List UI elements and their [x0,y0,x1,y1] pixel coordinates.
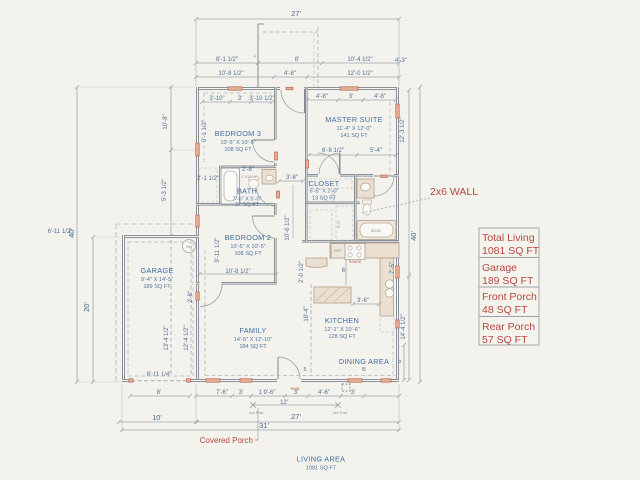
svg-text:3': 3' [351,390,355,396]
svg-text:3': 3' [238,96,242,102]
svg-text:20': 20' [82,302,91,312]
svg-text:9'-4" X 14'-5": 9'-4" X 14'-5" [141,277,173,283]
svg-text:9'-1 1/2": 9'-1 1/2" [202,120,208,142]
svg-text:12'-1" X 10'-6": 12'-1" X 10'-6" [324,327,359,333]
svg-text:1081 SQ FT: 1081 SQ FT [482,245,540,257]
svg-text:8': 8' [295,57,299,63]
svg-text:3': 3' [239,390,243,396]
svg-text:14'-4 1/2": 14'-4 1/2" [401,314,407,339]
svg-text:40': 40' [409,231,418,241]
svg-text:8'-11 1/4": 8'-11 1/4" [147,372,172,378]
svg-text:5'-5": 5'-5" [337,220,341,228]
svg-text:184 SQ FT: 184 SQ FT [239,344,267,350]
svg-text:4'-3": 4'-3" [395,58,407,64]
svg-text:Total Living: Total Living [482,232,535,244]
svg-text:KITCHEN: KITCHEN [325,316,359,325]
svg-text:3'-6": 3'-6" [357,298,369,304]
svg-text:WH: WH [186,245,193,249]
svg-text:13 SQ FT: 13 SQ FT [312,196,337,202]
svg-text:10'-8 1/2": 10'-8 1/2" [218,71,243,77]
svg-text:RANGE: RANGE [349,260,362,264]
svg-text:MASTER SUITE: MASTER SUITE [325,115,383,124]
svg-text:10': 10' [152,413,162,422]
svg-text:4'-6": 4'-6" [318,390,330,396]
svg-text:REF: REF [334,249,342,253]
svg-text:1081 SQ FT: 1081 SQ FT [306,466,337,472]
svg-text:BEDROOM 3: BEDROOM 3 [215,129,262,138]
svg-text:31': 31' [259,421,269,430]
svg-text:48 SQ FT: 48 SQ FT [482,304,528,316]
svg-text:6'-8 1/2": 6'-8 1/2" [322,148,344,154]
svg-text:10'-8": 10'-8" [163,114,169,129]
svg-text:10'-5" X 10'-5": 10'-5" X 10'-5" [220,140,255,146]
svg-text:RWB: RWB [291,387,300,391]
svg-text:BEDROOM 2: BEDROOM 2 [225,233,272,242]
svg-text:189 SQ FT: 189 SQ FT [143,284,171,290]
svg-text:8': 8' [157,390,161,396]
svg-text:108 SQ FT: 108 SQ FT [224,147,252,153]
svg-text:2x6 WALL: 2x6 WALL [430,186,478,198]
svg-text:2'-1 1/2": 2'-1 1/2" [197,176,219,182]
svg-text:CLOSET: CLOSET [309,179,340,188]
svg-text:1 9'-6": 1 9'-6" [259,390,276,396]
svg-text:8'-1 1/2": 8'-1 1/2" [216,57,238,63]
svg-text:FAMILY: FAMILY [239,326,266,335]
svg-text:10'-5" X 10'-5": 10'-5" X 10'-5" [230,244,265,250]
svg-text:4'-8": 4'-8" [284,71,296,77]
svg-text:9'-11 1/2": 9'-11 1/2" [215,238,221,263]
svg-text:60x32: 60x32 [371,229,381,233]
svg-text:27': 27' [291,412,301,421]
svg-text:3'-8": 3'-8" [286,175,298,181]
svg-text:Garage: Garage [482,262,517,274]
svg-text:5'-4": 5'-4" [370,148,382,154]
svg-text:Covered Porch: Covered Porch [200,436,253,445]
svg-text:4'-8": 4'-8" [374,94,386,100]
svg-text:108 SQ FT: 108 SQ FT [234,251,262,257]
svg-text:LIVING AREA: LIVING AREA [297,455,346,464]
svg-text:3'-10 1/2": 3'-10 1/2" [249,96,274,102]
svg-text:11'-4" X 12'-0": 11'-4" X 12'-0" [337,126,372,132]
svg-text:27': 27' [291,9,301,18]
svg-text:12'-0 1/2": 12'-0 1/2" [347,71,372,77]
svg-text:57 SQ FT: 57 SQ FT [482,334,528,346]
svg-text:6': 6' [253,54,257,57]
svg-text:189 SQ FT: 189 SQ FT [482,275,534,287]
svg-text:4x4 Post: 4x4 Post [249,411,265,415]
svg-text:DINING AREA: DINING AREA [339,357,389,366]
svg-text:12'-4 1/2": 12'-4 1/2" [184,325,190,350]
svg-text:4'-8": 4'-8" [316,94,328,100]
svg-text:18'-4": 18'-4" [304,306,310,321]
svg-text:Front Porch: Front Porch [482,291,537,303]
svg-text:37 SQ FT: 37 SQ FT [235,202,260,208]
svg-text:5'-3 1/2": 5'-3 1/2" [162,179,168,201]
svg-text:7'-5": 7'-5" [390,262,396,274]
svg-text:6'-5" X 2'-0": 6'-5" X 2'-0" [309,189,338,195]
svg-text:2'-0 1/2": 2'-0 1/2" [299,261,305,283]
svg-text:7'-6": 7'-6" [216,390,228,396]
svg-text:10'-6 1/2": 10'-6 1/2" [285,215,291,240]
svg-text:5: 5 [303,367,306,373]
svg-text:3'-10": 3'-10" [209,96,224,102]
svg-text:6'-11 1/2": 6'-11 1/2" [48,229,73,235]
svg-text:10'-4 1/2": 10'-4 1/2" [347,57,372,63]
svg-text:3': 3' [349,94,353,100]
svg-text:14'-5" X 12'-10": 14'-5" X 12'-10" [234,337,272,343]
svg-text:2'-8": 2'-8" [242,167,254,173]
svg-text:BATH: BATH [237,187,257,196]
svg-text:Rear Porch: Rear Porch [482,321,535,333]
svg-text:GARAGE: GARAGE [140,266,173,275]
svg-text:4x4 Post: 4x4 Post [333,411,349,415]
svg-text:1'-4" 1'-4": 1'-4" 1'-4" [241,175,258,179]
svg-text:12'-3 1/2": 12'-3 1/2" [400,117,406,142]
svg-text:141 SQ FT: 141 SQ FT [340,133,368,139]
svg-text:13'-4 1/2": 13'-4 1/2" [164,325,170,350]
svg-text:6': 6' [342,268,346,274]
svg-text:B: B [362,367,366,373]
svg-text:128 SQ FT: 128 SQ FT [328,334,356,340]
